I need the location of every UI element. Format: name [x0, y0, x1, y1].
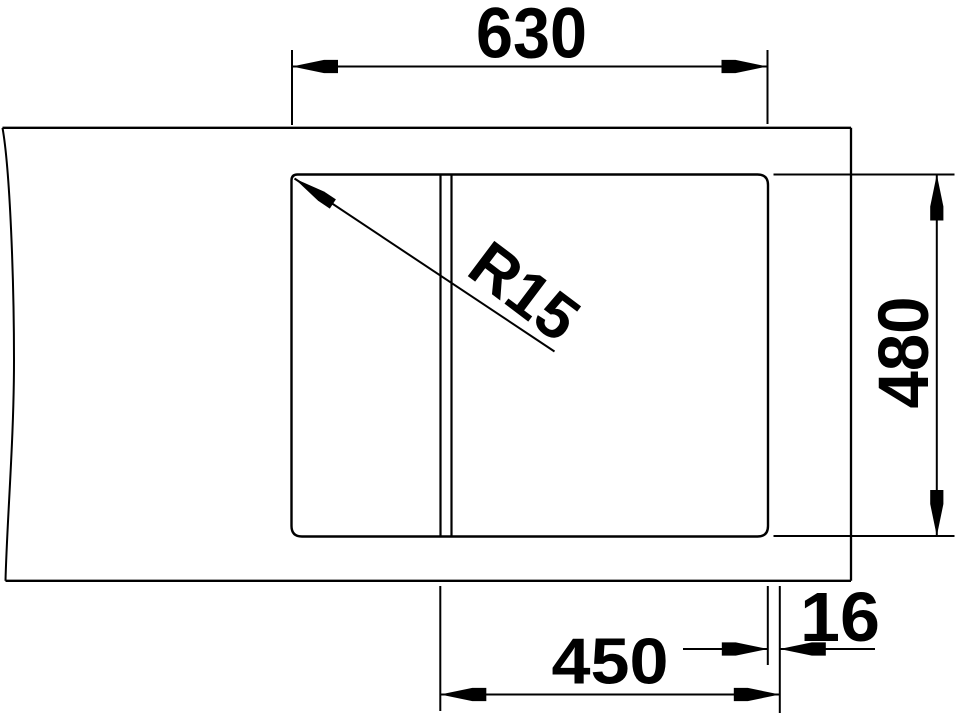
svg-text:16: 16: [800, 578, 880, 656]
svg-text:450: 450: [552, 625, 669, 698]
svg-text:480: 480: [865, 297, 944, 409]
svg-text:630: 630: [476, 0, 587, 73]
svg-text:R15: R15: [456, 227, 593, 355]
